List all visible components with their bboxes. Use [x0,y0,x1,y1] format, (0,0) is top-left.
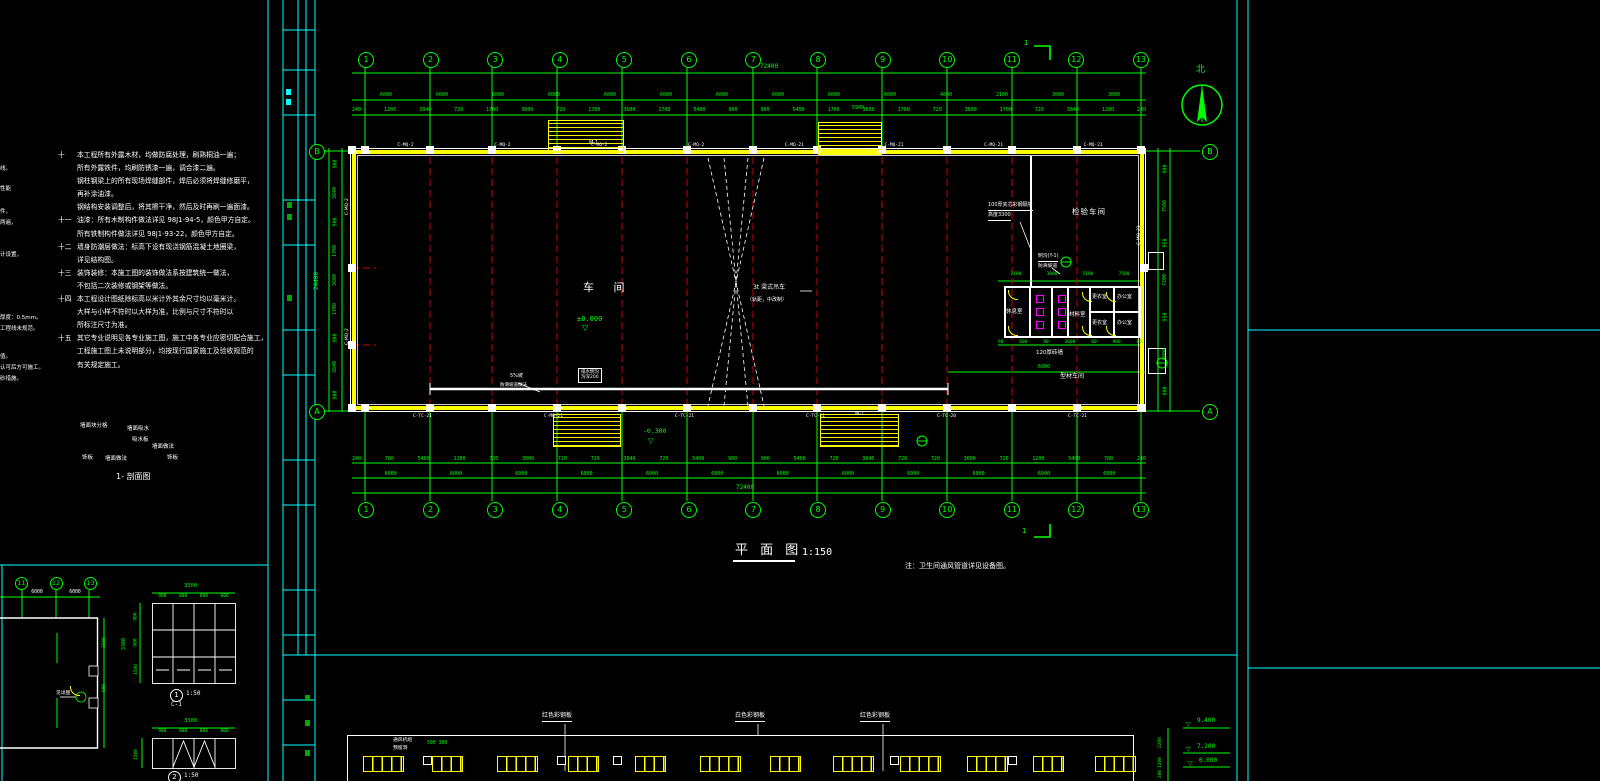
vent-opening [557,756,566,765]
win2-scale: 1:50 [184,773,198,780]
grid-bubble: 11 [1004,52,1020,68]
partition-label2: 高度3300 [988,213,1011,221]
trench-note-box: 排水明沟 沟深200 [578,368,602,383]
ramp-label2: 防滑坡道做法 [500,383,527,388]
crane-label: 3t 梁式吊车 [753,285,785,292]
grid-bubble: 3 [487,502,503,518]
level-value: 9.400 [1197,718,1215,725]
win1-seg-dims: 900800800800 [152,594,235,599]
note-line: 十四本工程设计图纸除标高以米计外其余尺寸均以毫米计。 [58,293,268,306]
grid-bubble: 2 [423,52,439,68]
grid-bubble-row: A [1202,404,1218,420]
note-line: 十三装饰装修：本施工图的装饰做法系按建筑统一做法， [58,267,268,280]
grid-bubble-row: B [309,144,325,160]
small-plan-note: 见详图 [56,691,70,697]
small-plan-linework [0,618,98,748]
ramp-label: 5%坡 [510,374,523,380]
wall-codes-bottom: C-TC-21C-MQ-21C-TC-21C-TC-21C-TC-20C-TC-… [357,414,1143,419]
elev-side-dim: 1200 [1158,757,1163,768]
drawing-title: 平 面 图 [735,544,802,559]
room-label-change: 更衣室 [1092,321,1107,327]
level-marker-icon: ▽ [1186,722,1191,729]
sheet-frames [0,0,1600,781]
gutter-label2: 防滑坡道 [1038,264,1057,270]
ramp-hatch [548,120,624,153]
grid-bubble: 12 [50,577,63,590]
grid-bubble: 13 [1133,502,1149,518]
win1-scale: 1:50 [186,691,200,698]
panel-label: 红色彩钢板 [860,713,890,722]
grid-bubble: 6 [681,502,697,518]
note-line: 十本工程所有外露木材，均做防腐处理，刷熟桐油一遍； [58,149,268,162]
win2-total: 3300 [184,718,197,724]
level-neg: -0.300 [643,428,666,435]
note-line: 详见结构图。 [58,254,268,267]
grid-bubble-row: B [1202,144,1218,160]
room-label-workshop: 车 间 [583,282,633,295]
titleblock-glyph [287,202,292,208]
dims-top-minor: 2401200384072017003600720170036001700540… [352,107,1146,113]
note-line: 所有铁制构件做法详见 98J1-93-22，颜色甲方自定。 [58,228,268,241]
dims-right: 900750095072009506000900 [1160,150,1171,410]
gutter-label: 明沟(Y-1) [1038,254,1058,262]
grid-bubble: 4 [552,52,568,68]
note-line: 十二墙身防潮层做法：标高下设有现浇钢筋混凝土地圈梁， [58,241,268,254]
panel-label: 白色彩钢板 [735,713,765,722]
level-marker-icon: ▽ [1188,761,1193,768]
door-label: M-1 [589,141,598,147]
note-line: 所标注尺寸为准。 [58,319,268,332]
section-number: 1 [1024,39,1028,47]
section-cut-icon [1034,46,1050,537]
vent-opening [890,756,899,765]
section-title: 1- 剖面图 [116,472,151,481]
grid-bubbles-top: 12345678910111213 [358,52,1149,68]
note-line: 钢结构安装调整后，将其擦干净，然后及时再刷一遍面漆。 [58,201,268,214]
office-dims-top: 2100300051007500 [998,272,1142,277]
note-line: 十一油漆：所有木制构件做法详见 98J1-94-5，颜色甲方自定。 [58,214,268,227]
titleblock-glyph [286,89,291,95]
grid-bubble: 8 [810,502,826,518]
office-dims-bottom: 906009036006090060 [998,340,1142,345]
titleblock-glyph [287,295,292,301]
grid-bubble: 1 [358,502,374,518]
note-line: 钢柱钢梁上的所有现场焊缝部件，焊后必须将焊缝修磨平， [58,175,268,188]
north-arrow-icon [1182,85,1222,125]
dim-total-top: 72400 [760,64,778,71]
drawing-linework [0,0,1600,781]
small-plan-dims: 60006000 [18,590,94,595]
section-number: 1 [1022,527,1026,535]
dims-left: 90038409001700360017009003840900 [330,150,341,410]
wall-code-right: C-MQ-21 [1137,225,1142,245]
crane-label2: （轨距，中改制） [747,298,787,304]
vent-label2: 预留洞 [393,746,407,752]
grid-bubbles-bottom: 12345678910111213 [358,502,1149,518]
grid-bubble: 9 [875,502,891,518]
elev-side-dim: 200 [1158,770,1163,778]
grid-bubble: 2 [423,502,439,518]
grid-bubble: 6 [681,52,697,68]
room-label-office: 办公室 [1117,295,1132,301]
note-line: 十五其它专业说明见各专业施工图，施工中各专业应密切配合施工， [58,332,268,345]
win1-code: C-1 [171,702,182,709]
wall-codes-top: C-MQ-2C-MQ-2C-MQ-2C-MQ-2C-MQ-21C-MQ-21C-… [357,143,1143,148]
vent-opening [613,756,622,765]
cross-bracing [708,158,764,406]
win1-total: 3300 [184,583,197,589]
grid-bubble: 3 [487,52,503,68]
room-label-office: 办公室 [1117,321,1132,327]
grid-bubble: 7 [745,502,761,518]
win2-seg-dims: 900800800800 [152,729,235,734]
grid-centerlines [352,146,1077,410]
titleblock-glyph [305,720,310,726]
title-underline [733,560,795,562]
window-detail-1 [153,604,236,684]
titleblock-glyph [305,695,310,701]
grid-bubble: 11 [15,577,28,590]
door-label: M-1 [855,412,864,418]
note-line: 不包括二次装修或钢架等做法。 [58,280,268,293]
detail-number-bubble: 2 [168,771,181,781]
compass-north-label: 北 [1196,65,1205,75]
win1-h-total: 3300 [122,638,128,650]
dims-top-major: 6000600060006000600060006000600060006000… [358,92,1142,98]
vent-label: 通风机组 [393,738,412,744]
grid-bubble: 9 [875,52,891,68]
grid-bubble: 12 [1068,502,1084,518]
grid-bubble: 12 [1068,52,1084,68]
level-value: 6.000 [1199,758,1217,765]
grid-bubble: 8 [810,52,826,68]
grid-bubble: 5 [616,502,632,518]
titleblock-glyph [287,214,292,220]
note-line: 工程施工图上未说明部分，均按现行国家施工及验收规范的 [58,345,268,358]
grid-bubble: 13 [84,577,97,590]
grid-bubble: 5 [616,52,632,68]
brick-wall-label: 120厚砖墙 [1036,350,1063,356]
grid-bubble: 10 [939,52,955,68]
building-walls [351,149,1146,412]
win1-h-dims: 9009001500 [131,603,141,683]
small-plan-side-dim: 3600 [102,637,107,648]
level-marker-icon: ▽ [582,323,588,332]
grid-bubble: 10 [939,502,955,518]
note-line: 所有外露铁件，均刷防锈漆一遍，调合漆二遍。 [58,162,268,175]
inner-dim: 6000 [1038,365,1050,371]
partition-label: 100厚夹芯彩钢隔墙 [988,203,1033,211]
drawing-scale: 1:150 [802,547,832,559]
grid-bubble: 4 [552,502,568,518]
grid-bubble: 11 [1004,502,1020,518]
level-marker-icon: ▽ [648,437,653,445]
ramp-hatch [818,122,882,155]
vent-opening [1008,756,1017,765]
level-value: 7.200 [1197,744,1215,751]
grid-bubble: 13 [1133,52,1149,68]
room-label-profile: 型材车间 [1060,374,1084,381]
elev-side-dim: 2200 [1158,737,1163,748]
grid-bubble: 1 [358,52,374,68]
wall-code-left: C-MQ-2 [345,328,350,345]
dim-total-left: 24400 [314,272,321,290]
room-label-change: 更衣室 [1092,295,1107,301]
note-line: 大样与小样不符时以大样为准，比例与尺寸不符时以 [58,306,268,319]
vent-opening [423,756,432,765]
level-marker-icon: ▽ [1186,747,1191,754]
panel-label: 红色彩钢板 [542,713,572,722]
grid-bubble-row: A [309,404,325,420]
note-line: 有关规定施工。 [58,359,268,372]
side-note: 注：卫生间通风管道详见设备图。 [905,562,1010,570]
small-plan-grids: 111213 [15,577,97,590]
vent-dims: 500 300 [427,741,447,747]
room-label-rest: 休息室 [1006,309,1023,315]
room-label-material: 材料室 [1069,312,1086,318]
office-walls [1005,156,1140,337]
wall-code-left: C-MQ-2 [345,198,350,215]
level-zero: ±0.000 [577,315,602,323]
trench-label2: 沟深200 [581,375,599,380]
room-label-inspection: 检验车间 [1072,208,1106,217]
note-line: 再补涂油漆。 [58,188,268,201]
general-notes: 十本工程所有外露木材，均做防腐处理，刷熟桐油一遍； 所有外露铁件，均刷防锈漆一遍… [58,149,268,372]
cad-canvas: 十本工程所有外露木材，均做防腐处理，刷熟桐油一遍； 所有外露铁件，均刷防锈漆一遍… [0,0,1600,781]
win2-h-dim: 1500 [134,749,139,760]
dims-bottom-major: 6000600060006000600060006000600060006000… [358,471,1142,477]
stair-dim: 5900 [852,106,864,112]
titleblock-glyph [305,750,310,756]
window-detail-2 [153,739,236,769]
dim-total-bottom: 72400 [736,485,754,492]
titleblock-glyph [286,99,291,105]
small-plan-side-dim: 900 [102,684,107,692]
dims-bottom-minor: 2407805400120072036007207203840720540090… [352,456,1146,462]
